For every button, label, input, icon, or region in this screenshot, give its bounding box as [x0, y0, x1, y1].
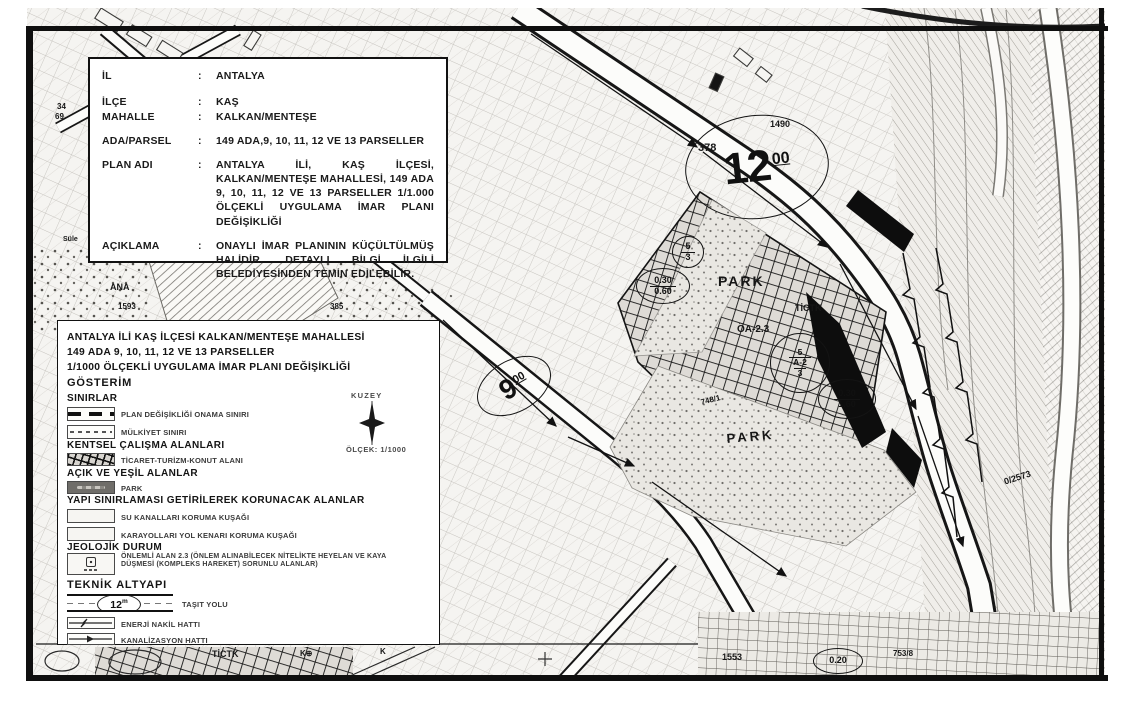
- map-label: 385: [330, 303, 343, 311]
- legend-title-line2: 149 ADA 9, 10, 11, 12 VE 13 PARSELLER: [67, 347, 275, 358]
- map-ellipse-label: 5A-23: [770, 333, 830, 393]
- map-label: Süle: [63, 236, 78, 243]
- map-ellipse-label: 1200: [680, 108, 834, 226]
- legend-item-onlemli-alan: ÖNLEMLİ ALAN 2.3 (ÖNLEM ALINABİLECEK NİT…: [121, 553, 421, 569]
- legend-item-mulkiyet: MÜLKİYET SINIRI: [121, 428, 187, 437]
- map-ellipse-label: 0.300.60: [636, 268, 690, 304]
- zoning-plan-sheet: 3781490PARKPARKTİCTKTİCTKÖA-2.3748/1ANA1…: [0, 0, 1137, 720]
- north-label: KUZEY: [351, 391, 382, 400]
- info-colon: :: [198, 134, 216, 148]
- map-label: 0/2573: [1003, 469, 1032, 486]
- sewer-line-icon: [68, 634, 114, 644]
- map-label: 34: [57, 103, 66, 111]
- legend-title-line1: ANTALYA İLİ KAŞ İLÇESİ KALKAN/MENTEŞE MA…: [67, 332, 365, 343]
- info-value: ONAYLI İMAR PLANININ KÜÇÜLTÜLMÜŞ HALİDİR…: [216, 239, 434, 281]
- info-colon: :: [198, 158, 216, 172]
- legend-heading-acik-yesil: AÇIK VE YEŞİL ALANLAR: [67, 468, 198, 479]
- info-value: ANTALYA: [216, 69, 434, 83]
- info-row-il: İL : ANTALYA: [102, 69, 434, 83]
- legend-item-enerji: ENERJİ NAKİL HATTI: [121, 620, 200, 629]
- legend-box: ANTALYA İLİ KAŞ İLÇESİ KALKAN/MENTEŞE MA…: [57, 320, 440, 645]
- legend-heading-jeolojik: JEOLOJİK DURUM: [67, 542, 162, 553]
- road-width-unit: m: [122, 598, 128, 605]
- map-label: 748/1: [700, 394, 721, 407]
- info-label: MAHALLE: [102, 110, 198, 124]
- info-label: PLAN ADI: [102, 158, 198, 172]
- plan-info-box: İL : ANTALYA İLÇE : KAŞ MAHALLE : KALKAN…: [88, 57, 448, 263]
- legend-title-line3: 1/1000 ÖLÇEKLİ UYGULAMA İMAR PLANI DEĞİŞ…: [67, 362, 350, 373]
- map-label: 753/8: [893, 650, 913, 658]
- symbol-onlemli-alan: [67, 553, 115, 575]
- info-label: AÇIKLAMA: [102, 239, 198, 253]
- info-colon: :: [198, 110, 216, 124]
- map-label: 1553: [722, 653, 742, 662]
- legend-gosterim-heading: GÖSTERİM: [67, 377, 132, 389]
- symbol-ticaret-turizm-konut: [67, 453, 115, 466]
- symbol-park: [67, 481, 115, 494]
- legend-heading-kentsel: KENTSEL ÇALIŞMA ALANLARI: [67, 440, 225, 451]
- info-colon: :: [198, 95, 216, 109]
- map-label: 1593: [118, 303, 136, 311]
- road-width-value: 12: [110, 599, 122, 611]
- legend-item-tasit-yolu: TAŞIT YOLU: [182, 600, 228, 609]
- map-label: PARK: [718, 274, 765, 288]
- road-width-oval: 12m: [97, 594, 141, 612]
- scale-label: ÖLÇEK: 1/1000: [346, 445, 406, 454]
- legend-item-karayollari: KARAYOLLARI YOL KENARI KORUMA KUŞAĞI: [121, 531, 297, 540]
- map-label: ANA: [110, 283, 130, 292]
- map-ellipse-label: 900: [466, 343, 561, 428]
- info-value: 149 ADA,9, 10, 11, 12 VE 13 PARSELLER: [216, 134, 434, 148]
- map-label: ÖA-2.3: [737, 325, 769, 335]
- symbol-mulkiyet-siniri: [67, 425, 115, 439]
- legend-item-onama: PLAN DEĞİŞİKLİĞİ ONAMA SINIRI: [121, 410, 249, 419]
- map-ellipse-label: 53: [672, 236, 704, 268]
- info-value: KALKAN/MENTEŞE: [216, 110, 434, 124]
- symbol-onama-siniri: [67, 407, 115, 421]
- info-colon: :: [198, 239, 216, 253]
- info-colon: :: [198, 69, 216, 83]
- symbol-karayollari: [67, 527, 115, 541]
- legend-item-kanalizasyon: KANALİZASYON HATTI: [121, 636, 208, 645]
- info-value: KAŞ: [216, 95, 434, 109]
- legend-item-su-kanallari: SU KANALLARI KORUMA KUŞAĞI: [121, 513, 249, 522]
- map-label: K: [380, 648, 386, 656]
- symbol-kanalizasyon: [67, 633, 115, 645]
- map-label: 69.: [55, 113, 66, 121]
- map-ellipse-label: 0.301.60: [818, 379, 876, 419]
- info-row-ada-parsel: ADA/PARSEL : 149 ADA,9, 10, 11, 12 VE 13…: [102, 134, 434, 148]
- info-row-ilce: İLÇE : KAŞ: [102, 95, 434, 109]
- info-row-aciklama: AÇIKLAMA : ONAYLI İMAR PLANININ KÜÇÜLTÜL…: [102, 239, 434, 281]
- legend-heading-sinirlar: SINIRLAR: [67, 393, 117, 404]
- map-label: TİCTK: [795, 304, 822, 313]
- symbol-su-kanallari: [67, 509, 115, 523]
- info-row-plan-adi: PLAN ADI : ANTALYA İLİ, KAŞ İLÇESİ, KALK…: [102, 158, 434, 228]
- symbol-tasit-yolu: 12m: [67, 594, 173, 612]
- map-label: K⊕: [300, 650, 312, 658]
- map-label: TİCTK: [212, 650, 239, 659]
- legend-heading-yapi-sinirlamasi: YAPI SINIRLAMASI GETİRİLEREK KORUNACAK A…: [67, 495, 365, 506]
- energy-line-icon: [68, 618, 114, 628]
- map-label: PARK: [726, 428, 775, 445]
- info-label: İL: [102, 69, 198, 83]
- north-arrow-icon: [355, 401, 389, 445]
- legend-item-ticaret: TİCARET-TURİZM-KONUT ALANI: [121, 456, 243, 465]
- legend-heading-teknik-altyapi: TEKNİK ALTYAPI: [67, 579, 167, 591]
- info-row-mahalle: MAHALLE : KALKAN/MENTEŞE: [102, 110, 434, 124]
- info-label: İLÇE: [102, 95, 198, 109]
- map-ellipse-label: 0.20: [813, 648, 863, 674]
- symbol-enerji-nakil: [67, 617, 115, 629]
- info-label: ADA/PARSEL: [102, 134, 198, 148]
- info-value: ANTALYA İLİ, KAŞ İLÇESİ, KALKAN/MENTEŞE …: [216, 158, 434, 228]
- legend-item-park: PARK: [121, 484, 143, 493]
